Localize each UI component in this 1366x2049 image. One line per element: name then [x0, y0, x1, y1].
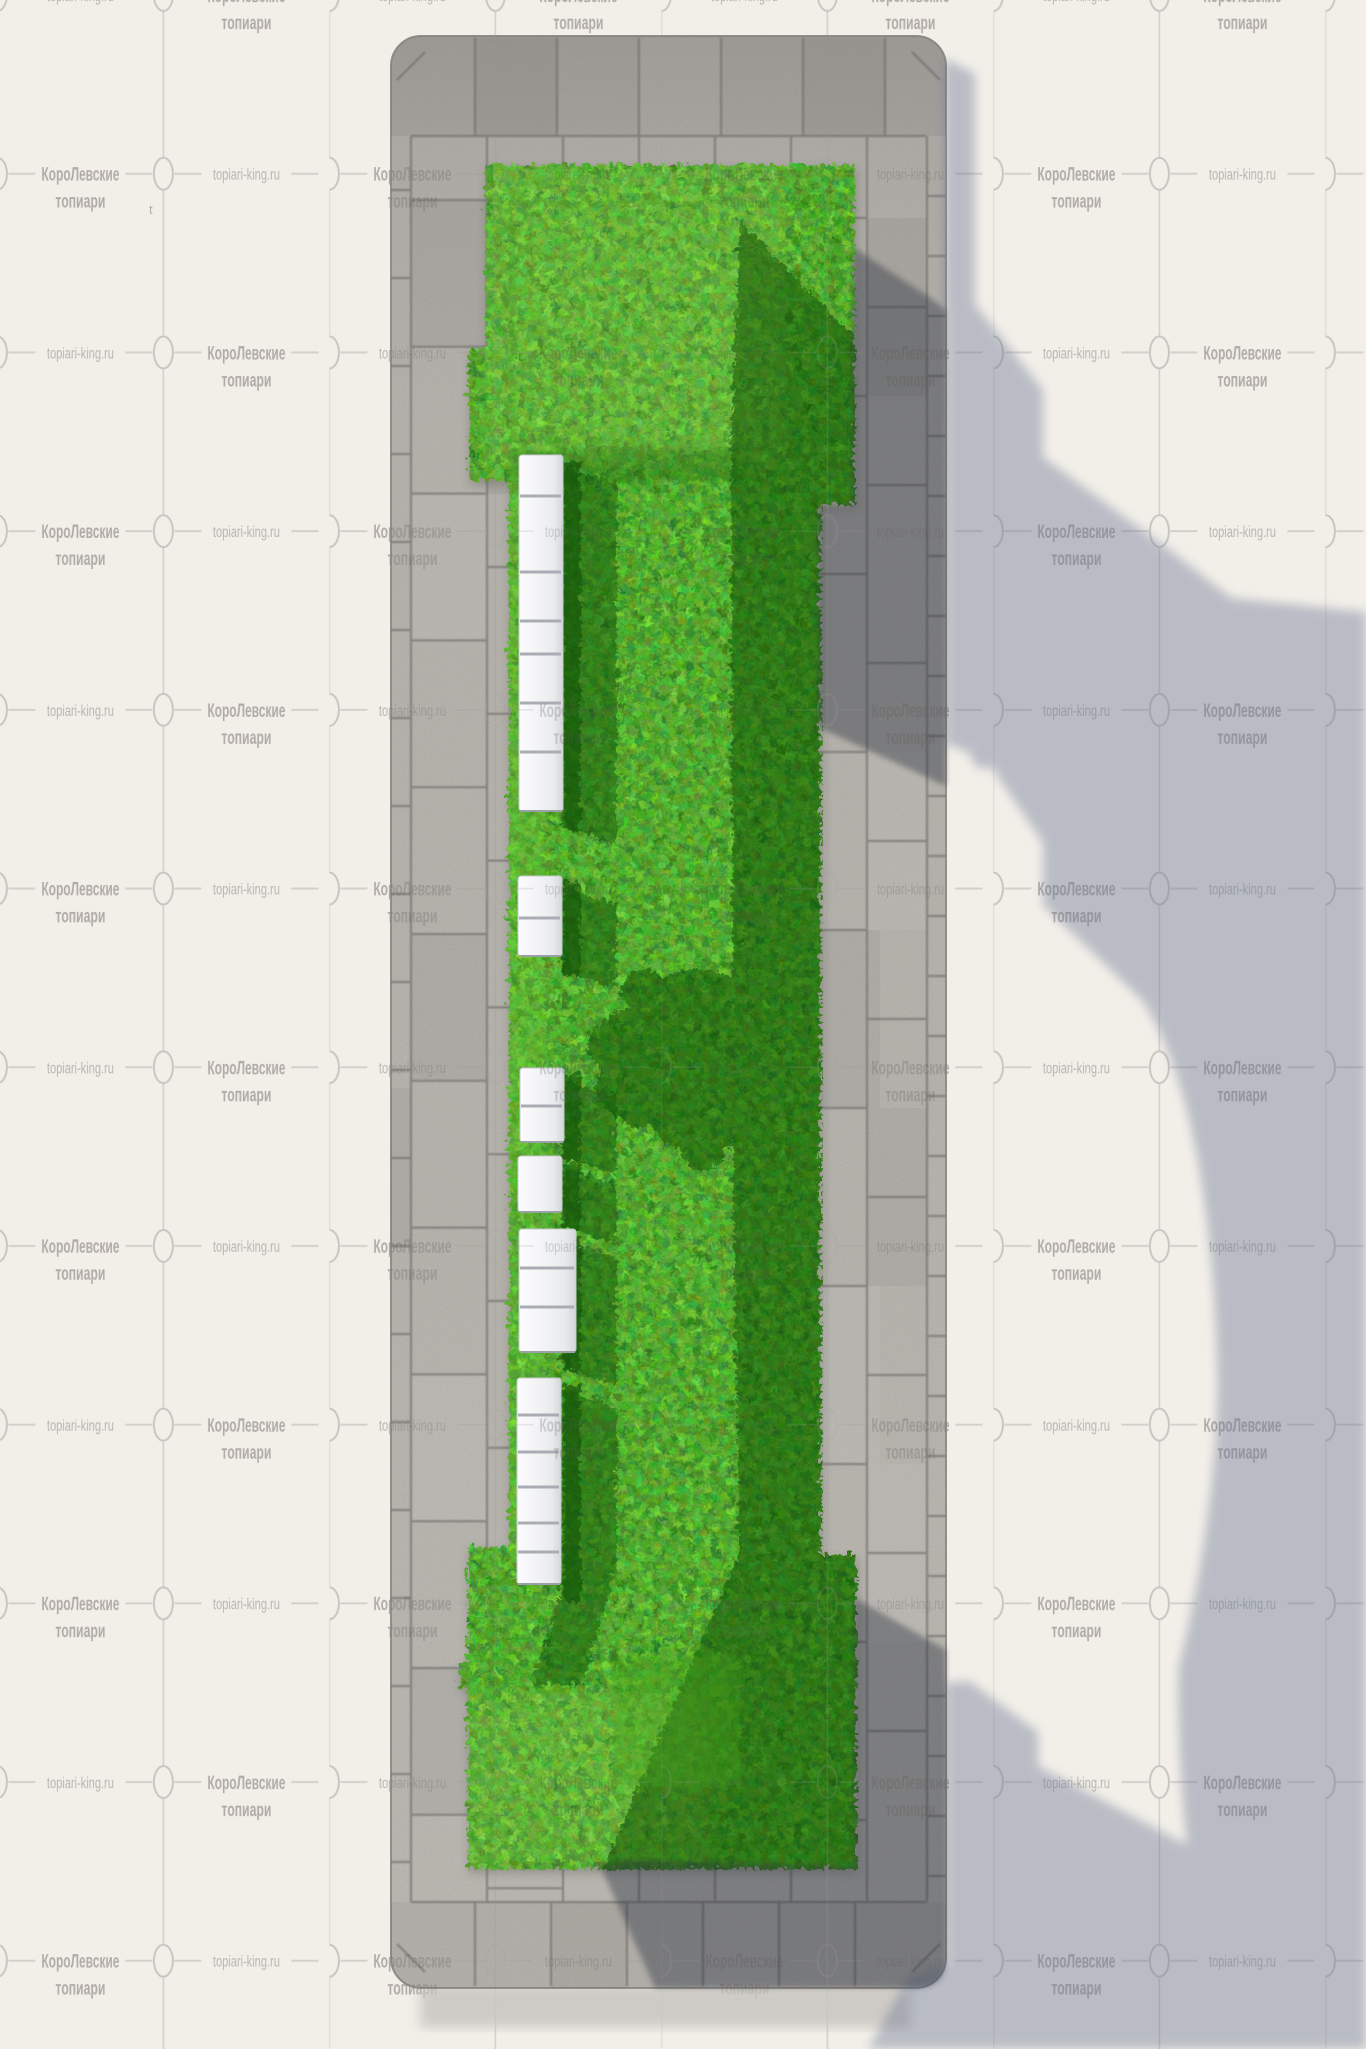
svg-text:t: t: [149, 202, 153, 217]
